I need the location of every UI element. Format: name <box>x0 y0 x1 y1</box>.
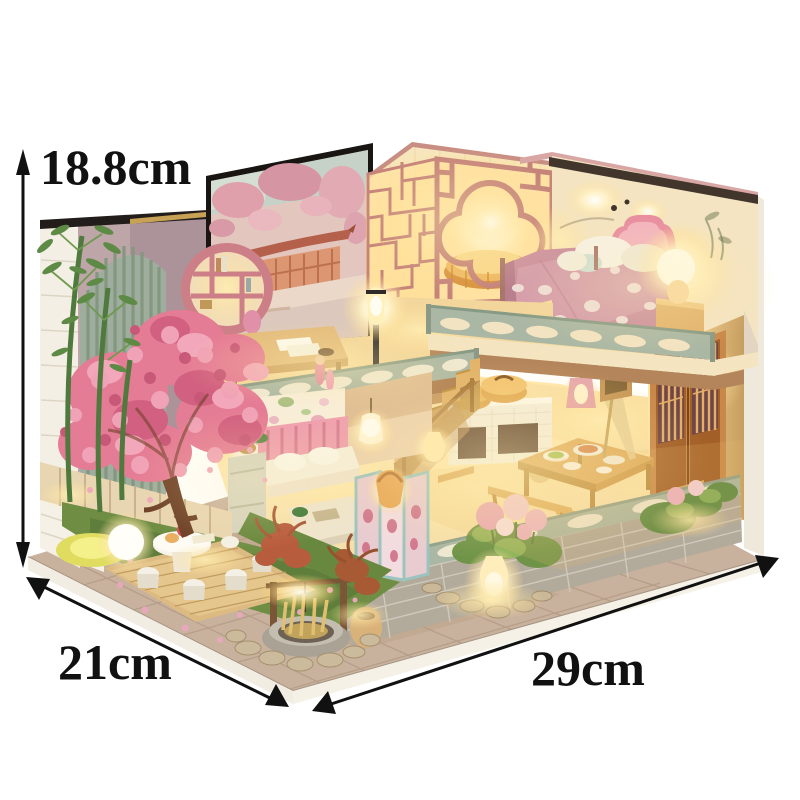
svg-text:29cm: 29cm <box>531 640 645 696</box>
svg-text:18.8cm: 18.8cm <box>40 139 191 195</box>
svg-text:21cm: 21cm <box>58 634 172 690</box>
